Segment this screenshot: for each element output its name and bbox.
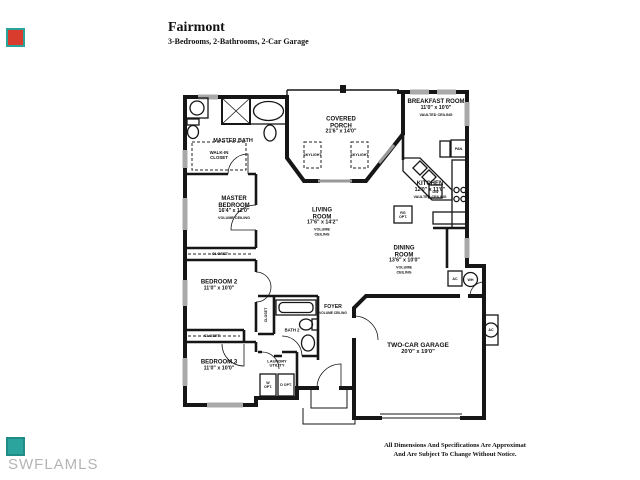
porch-post [340,85,346,93]
dishwasher-label: DW [429,189,443,193]
room-label-foyer: FOYER VOLUME CEILING [318,305,348,315]
air-handler-label: AC [448,277,462,281]
washer-opt-label: W OPT. [262,381,274,389]
room-label-bedroom3: BEDROOM 3 11'0" x 10'0" [184,360,254,373]
water-heater-label: WH [464,278,478,282]
room-label-living: LIVING ROOM 17'6" x 14'2" VOLUME CEILING [307,208,337,237]
skylight-label-2: SKYLIGHT [340,153,380,157]
room-label-walkin-closet: WALK-IN CLOSET [205,151,233,161]
skylight-label-1: SKYLIGHT [293,153,333,157]
room-label-breakfast: BREAKFAST ROOM 11'0" x 10'0" VAULTED CEI… [396,99,476,117]
closet-label-hall: CLOSET [264,300,268,330]
floor-plan-page: Fairmont 3-Bedrooms, 2-Bathrooms, 2-Car … [0,0,640,480]
closet-label-bedroom3: CLOSET [192,334,232,338]
room-label-bedroom2: BEDROOM 2 11'0" x 10'0" [184,280,254,293]
disclaimer-line2: And Are Subject To Change Without Notice… [330,451,580,460]
room-label-laundry: LAUNDRY UTILITY [264,360,290,369]
disclaimer: All Dimensions And Specifications Are Ap… [330,442,580,460]
floor-plan-drawing [0,0,640,480]
closet-label-master: CLOSET [200,252,240,256]
condenser-label: AC [484,328,498,332]
room-label-dining: DINING ROOM 13'6" x 10'0" VOLUME CEILING [389,246,419,275]
room-label-master-bedroom: MASTER BEDROOM 16'4" x 12'0" VOLUME CEIL… [216,196,252,221]
mls-watermark: SWFLAMLS [8,456,99,473]
room-label-garage: TWO-CAR GARAGE 20'0" x 19'0" [371,342,465,356]
disclaimer-line1: All Dimensions And Specifications Are Ap… [330,442,580,451]
dryer-opt-label: D OPT. [280,383,292,387]
room-label-master-bath: MASTER BATH [203,138,263,144]
room-label-bath2: BATH 2 [277,329,307,334]
pantry-label: PAN. [450,147,468,151]
range-opt-label: RG OPT. [397,211,410,219]
room-label-covered-porch: COVERED PORCH 21'6" x 14'0" [319,116,363,135]
